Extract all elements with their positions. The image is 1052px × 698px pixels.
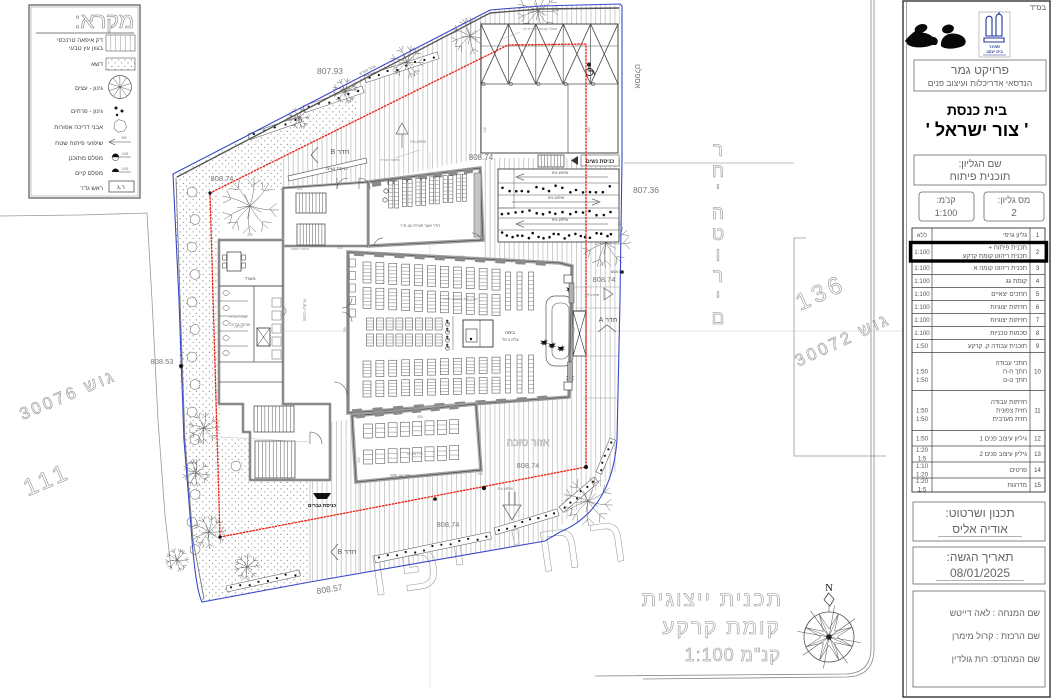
svg-text:1:50: 1:50: [916, 377, 929, 384]
svg-text:תכנון ושרטוט:: תכנון ושרטוט:: [945, 506, 1014, 520]
svg-text:מס גליון:: מס גליון:: [998, 195, 1031, 205]
svg-text:טרקלין כניסה: טרקלין כניסה: [302, 299, 307, 322]
svg-text:298: 298: [477, 472, 483, 476]
svg-text:שיפוע 5%: שיפוע 5%: [548, 195, 565, 200]
svg-text:שיפוע 2%: שיפוע 2%: [585, 293, 600, 297]
svg-text:חזיתות יצוגיות: חזיתות יצוגיות: [990, 304, 1027, 311]
svg-text:1:100: 1:100: [935, 208, 958, 218]
svg-text:25 מ"ר: 25 מ"ר: [233, 325, 243, 329]
svg-text:חתכים יצאיים: חתכים יצאיים: [991, 291, 1027, 298]
svg-text:808.74: 808.74: [517, 461, 540, 470]
svg-text:חזיתות עבודה: חזיתות עבודה: [991, 399, 1027, 406]
svg-text:תוכנית פיתוח: תוכנית פיתוח: [950, 171, 1011, 183]
svg-text:1:10: 1:10: [916, 463, 929, 470]
svg-text:שיפוע 5%: שיפוע 5%: [552, 170, 569, 175]
svg-text:בס"ד: בס"ד: [1030, 3, 1047, 12]
svg-text:1193: 1193: [457, 255, 464, 259]
svg-text:חתך ח-ח: חתך ח-ח: [1003, 369, 1027, 376]
svg-text:עליה 3 מד': עליה 3 מד': [501, 338, 519, 342]
svg-text:808.74: 808.74: [593, 275, 616, 284]
svg-text:344: 344: [357, 457, 361, 463]
svg-text:ה: ה: [712, 203, 724, 224]
svg-text:תאריך הגשה:: תאריך הגשה:: [947, 550, 1014, 564]
svg-text:אודיה אליס: אודיה אליס: [952, 522, 1008, 536]
svg-text:תוכנית עבודה ק. קרקע: תוכנית עבודה ק. קרקע: [968, 343, 1027, 350]
svg-text:י: י: [716, 287, 721, 308]
svg-text:אזור סוכה: אזור סוכה: [506, 437, 549, 449]
svg-text:1:50: 1:50: [916, 416, 929, 423]
svg-text:מקרא:: מקרא:: [74, 8, 134, 33]
svg-text:366: 366: [587, 127, 591, 133]
svg-text:שם הרכזת : קרול מימרן: שם הרכזת : קרול מימרן: [952, 631, 1040, 641]
svg-text:ו: ו: [716, 245, 721, 266]
svg-text:מפלס קיים: מפלס קיים: [75, 169, 103, 177]
svg-text:ללא: ללא: [917, 231, 927, 239]
svg-text:1:50: 1:50: [916, 435, 929, 442]
svg-text:10: 10: [1034, 370, 1041, 376]
svg-text:חדר B: חדר B: [338, 549, 357, 556]
svg-text:1:5: 1:5: [918, 455, 927, 462]
svg-text:210: 210: [247, 233, 253, 237]
svg-text:חדר B: חדר B: [331, 149, 350, 156]
svg-text:גיליון עיצוב פנים 1: גיליון עיצוב פנים 1: [979, 434, 1027, 442]
svg-text:807.93: 807.93: [317, 66, 343, 76]
svg-text:שיפוע 5%: שיפוע 5%: [552, 217, 569, 222]
svg-text:שיפוע 2%: שיפוע 2%: [497, 487, 513, 491]
svg-text:הנדסאי אדריכלות ועיצוב פנים: הנדסאי אדריכלות ועיצוב פנים: [928, 78, 1032, 88]
svg-text:סכמות טכניות: סכמות טכניות: [990, 330, 1027, 337]
svg-text:משרד: משרד: [244, 276, 255, 281]
svg-text:גינון - עצים: גינון - עצים: [75, 85, 103, 92]
svg-text:1:100: 1:100: [914, 291, 930, 298]
svg-text:פרטים: פרטים: [1010, 467, 1027, 474]
svg-text:1:20: 1:20: [916, 447, 929, 454]
svg-text:312: 312: [297, 187, 303, 191]
svg-text:780: 780: [343, 327, 347, 333]
svg-text:שם הגליון:: שם הגליון:: [958, 158, 1001, 170]
svg-text:ר: ר: [713, 266, 723, 287]
svg-text:0.00: 0.00: [122, 152, 129, 156]
svg-text:1:50: 1:50: [916, 369, 929, 376]
svg-text:חזית מערבית: חזית מערבית: [992, 416, 1027, 423]
svg-text:בית כנסת: בית כנסת: [947, 102, 1007, 118]
svg-text:חתכי עבודה: חתכי עבודה: [995, 360, 1027, 367]
svg-text:ר.ג: ר.ג: [117, 185, 124, 191]
svg-text:חזיתות יצוגיות: חזיתות יצוגיות: [990, 317, 1027, 324]
svg-text:שיפועי פיתוח שטח: שיפועי פיתוח שטח: [55, 140, 103, 147]
svg-text:גינון - פרחים: גינון - פרחים: [71, 108, 103, 115]
svg-text:ט: ט: [712, 224, 724, 245]
svg-text:08/01/2025: 08/01/2025: [950, 566, 1010, 580]
svg-text:כניסת נשים: כניסת נשים: [586, 159, 614, 165]
svg-text:655: 655: [417, 415, 423, 419]
svg-text:1:20: 1:20: [916, 478, 929, 485]
svg-text:דשא: דשא: [91, 61, 103, 68]
svg-text:1:100: 1:100: [914, 317, 930, 324]
svg-text:בימה: בימה: [505, 330, 515, 335]
svg-text:סה"כ 180 מקומות ישיבה: סה"כ 180 מקומות ישיבה: [443, 297, 479, 301]
svg-text:חתך ט-ט: חתך ט-ט: [1003, 377, 1027, 384]
svg-text:שרותי גברים: שרותי גברים: [229, 315, 247, 319]
svg-text:808.74: 808.74: [437, 520, 460, 529]
svg-text:1:50: 1:50: [916, 343, 929, 350]
svg-text:ח: ח: [712, 161, 725, 182]
svg-text:מעקה זכוכית: מעקה זכוכית: [380, 158, 400, 162]
svg-text:מפלס מתוכנן: מפלס מתוכנן: [69, 154, 103, 162]
svg-text:807.36: 807.36: [633, 185, 659, 195]
svg-text:אבני דריכה אפורות: אבני דריכה אפורות: [54, 124, 103, 131]
svg-text:N: N: [825, 582, 833, 594]
svg-text:אספלט: אספלט: [633, 64, 642, 89]
svg-text:גליון גרפי: גליון גרפי: [1003, 231, 1027, 239]
svg-text:תכנית ייצוגית: תכנית ייצוגית: [642, 588, 783, 611]
svg-text:0.00: 0.00: [122, 167, 129, 171]
svg-text:11: 11: [1034, 409, 1041, 415]
svg-text:שיפוע 2%: שיפוע 2%: [410, 140, 426, 144]
svg-text:2: 2: [1011, 208, 1017, 219]
svg-text:שם המהנדס: רות גולדין: שם המהנדס: רות גולדין: [952, 654, 1041, 664]
svg-text:1:5: 1:5: [918, 486, 927, 493]
svg-text:1:100: 1:100: [914, 249, 930, 256]
svg-text:חדר 35 תלמ': חדר 35 תלמ': [390, 474, 411, 478]
svg-text:קומת קרקע: קומת קרקע: [662, 616, 781, 639]
svg-text:בית יעקב: בית יעקב: [986, 49, 1003, 54]
svg-text:מדרגות: מדרגות: [1007, 482, 1027, 489]
svg-text:410: 410: [572, 327, 576, 333]
svg-text:520: 520: [337, 246, 343, 250]
svg-text:808.74: 808.74: [211, 174, 234, 183]
svg-text:ראש גדר: ראש גדר: [80, 185, 103, 192]
svg-text:15: 15: [1034, 483, 1041, 489]
svg-text:808.04: 808.04: [611, 269, 624, 274]
svg-text:פרויקט גמר: פרויקט גמר: [951, 63, 1009, 77]
svg-text:תכנית ריהוט קומה א: תכנית ריהוט קומה א: [974, 265, 1027, 272]
svg-text:חדר A: חדר A: [599, 317, 618, 324]
svg-text:': ': [716, 182, 720, 203]
svg-text:קנ'מ:: קנ'מ:: [936, 195, 955, 205]
svg-text:שם המנחה : לאה דייטש: שם המנחה : לאה דייטש: [950, 608, 1041, 618]
svg-text:5%: 5%: [121, 136, 126, 140]
svg-text:808.53: 808.53: [151, 357, 174, 366]
svg-text:12: 12: [1034, 436, 1041, 442]
svg-text:בגוון עץ טבעי: בגוון עץ טבעי: [69, 45, 103, 52]
svg-text:110: 110: [617, 222, 622, 226]
svg-text:440: 440: [483, 127, 487, 133]
svg-text:' צור ישראל ': ' צור ישראל ': [926, 120, 1029, 140]
svg-text:13: 13: [1034, 452, 1041, 458]
svg-text:קנ"מ 1:100: קנ"מ 1:100: [685, 645, 781, 665]
svg-text:1:100: 1:100: [914, 304, 930, 311]
svg-text:קומת גג: קומת גג: [1006, 278, 1027, 285]
svg-text:כניסת גברים: כניסת גברים: [308, 503, 336, 509]
svg-text:1:100: 1:100: [914, 265, 930, 272]
svg-text:תכנית ריהוט קומת קרקע: תכנית ריהוט קומת קרקע: [963, 253, 1027, 260]
svg-text:14: 14: [1034, 468, 1041, 474]
svg-text:גיליון עיצוב פנים 2: גיליון עיצוב פנים 2: [979, 450, 1027, 458]
svg-text:דק איפאה טרנכסי: דק איפאה טרנכסי: [57, 37, 104, 44]
svg-text:ם: ם: [712, 308, 725, 329]
svg-text:כניסת נשים: כניסת נשים: [326, 166, 348, 171]
svg-text:חזית צפונית: חזית צפונית: [996, 408, 1027, 415]
svg-text:ר: ר: [713, 140, 723, 161]
svg-text:808.74: 808.74: [469, 153, 494, 162]
svg-text:1:50: 1:50: [916, 408, 929, 415]
svg-text:מצלל קונסטרוקציית עץ: מצלל קונסטרוקציית עץ: [523, 27, 558, 31]
svg-text:חדר אשר פצילה 36 מ"ר: חדר אשר פצילה 36 מ"ר: [400, 223, 440, 228]
svg-text:בית מדרש: בית מדרש: [407, 452, 423, 456]
svg-text:כניסה ראשית: כניסה ראשית: [291, 247, 310, 251]
svg-text:1:100: 1:100: [914, 330, 930, 337]
svg-text:1:100: 1:100: [914, 278, 930, 285]
svg-text:תכנית פיתוח +: תכנית פיתוח +: [988, 245, 1027, 252]
